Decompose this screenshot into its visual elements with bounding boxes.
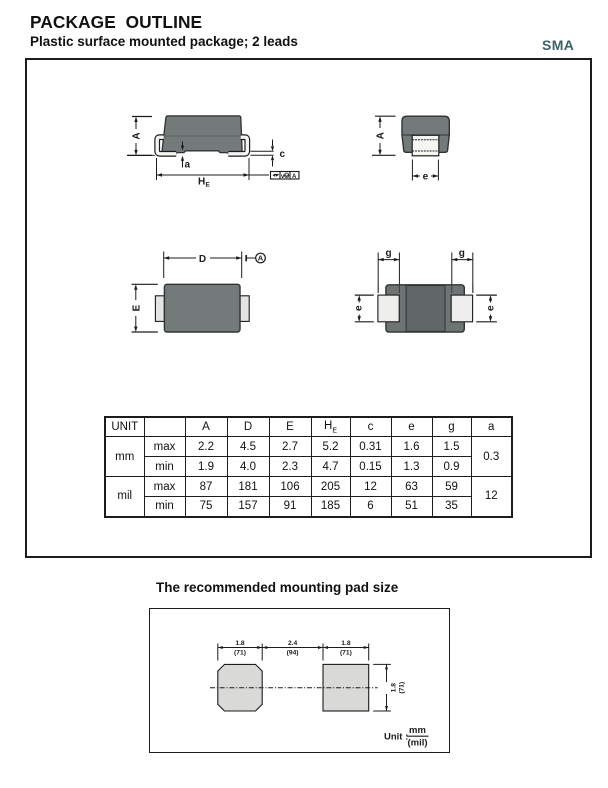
svg-text:g: g <box>385 248 391 259</box>
svg-text:A: A <box>258 254 264 263</box>
svg-text:e: e <box>485 305 496 311</box>
svg-text:e: e <box>353 305 364 311</box>
svg-text:e: e <box>423 172 429 183</box>
svg-text:A: A <box>132 132 143 139</box>
svg-text:A: A <box>292 174 297 180</box>
svg-text:A: A <box>376 132 387 139</box>
svg-text:E: E <box>206 182 211 189</box>
svg-text:E: E <box>131 304 142 311</box>
svg-text:c: c <box>280 149 286 160</box>
svg-text:g: g <box>459 248 465 259</box>
svg-text:D: D <box>199 254 206 265</box>
svg-text:M: M <box>285 173 289 179</box>
svg-text:a: a <box>185 160 191 171</box>
svg-text:H: H <box>198 177 205 188</box>
